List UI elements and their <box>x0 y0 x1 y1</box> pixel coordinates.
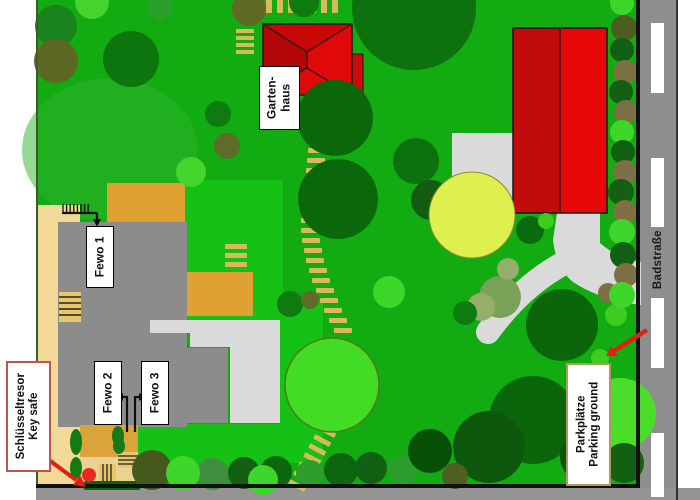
fewo3-text: Fewo 3 <box>148 373 162 414</box>
fewo2-text: Fewo 2 <box>101 373 115 414</box>
label-street-badstrasse: Badstraße <box>639 222 677 298</box>
tree <box>497 258 519 280</box>
gartenhaus-line2: haus <box>280 77 294 120</box>
label-gartenhaus: Garten- haus <box>259 66 300 130</box>
site-plan: Garten- haus Fewo 1 Fewo 2 Fewo 3 Schlüs… <box>0 0 700 500</box>
label-fewo1: Fewo 1 <box>86 226 114 288</box>
gartenhaus-line1: Garten- <box>266 77 280 120</box>
red-building <box>513 28 607 213</box>
tree <box>34 39 78 83</box>
bush <box>248 465 278 495</box>
tree <box>214 133 240 159</box>
bush <box>296 460 324 488</box>
label-fewo3: Fewo 3 <box>141 361 169 425</box>
key-safe-dot <box>82 468 96 482</box>
tree <box>373 276 405 308</box>
tree <box>429 172 515 258</box>
tree <box>205 101 231 127</box>
label-key-safe: Schlüsseltresor Key safe <box>6 361 51 472</box>
bush <box>609 282 635 308</box>
tree <box>526 289 598 361</box>
bush <box>610 38 634 62</box>
parking-line2: Parking ground <box>589 382 602 467</box>
tree <box>453 301 477 325</box>
bush <box>324 453 358 487</box>
street-name-text: Badstraße <box>651 231 664 290</box>
tree <box>538 213 554 229</box>
label-fewo2: Fewo 2 <box>94 361 122 425</box>
fewo1-text: Fewo 1 <box>93 237 107 278</box>
tree <box>285 338 379 432</box>
bush <box>609 80 633 104</box>
tree <box>297 80 373 156</box>
tree <box>393 138 439 184</box>
keysafe-line2: Key safe <box>29 373 42 459</box>
bush <box>611 15 637 41</box>
tree <box>277 291 303 317</box>
bush <box>609 219 635 245</box>
parking-line1: Parkplätze <box>575 382 588 467</box>
keysafe-line1: Schlüsseltresor <box>15 373 28 459</box>
bush <box>408 429 452 473</box>
tree <box>176 157 206 187</box>
balcony <box>187 272 253 316</box>
label-parking: Parkplätze Parking ground <box>566 363 611 486</box>
tree <box>301 291 319 309</box>
bush <box>355 452 387 484</box>
tree <box>103 31 159 87</box>
bush <box>613 60 637 84</box>
balcony <box>107 183 185 222</box>
tree <box>298 159 378 239</box>
bush <box>614 100 638 124</box>
